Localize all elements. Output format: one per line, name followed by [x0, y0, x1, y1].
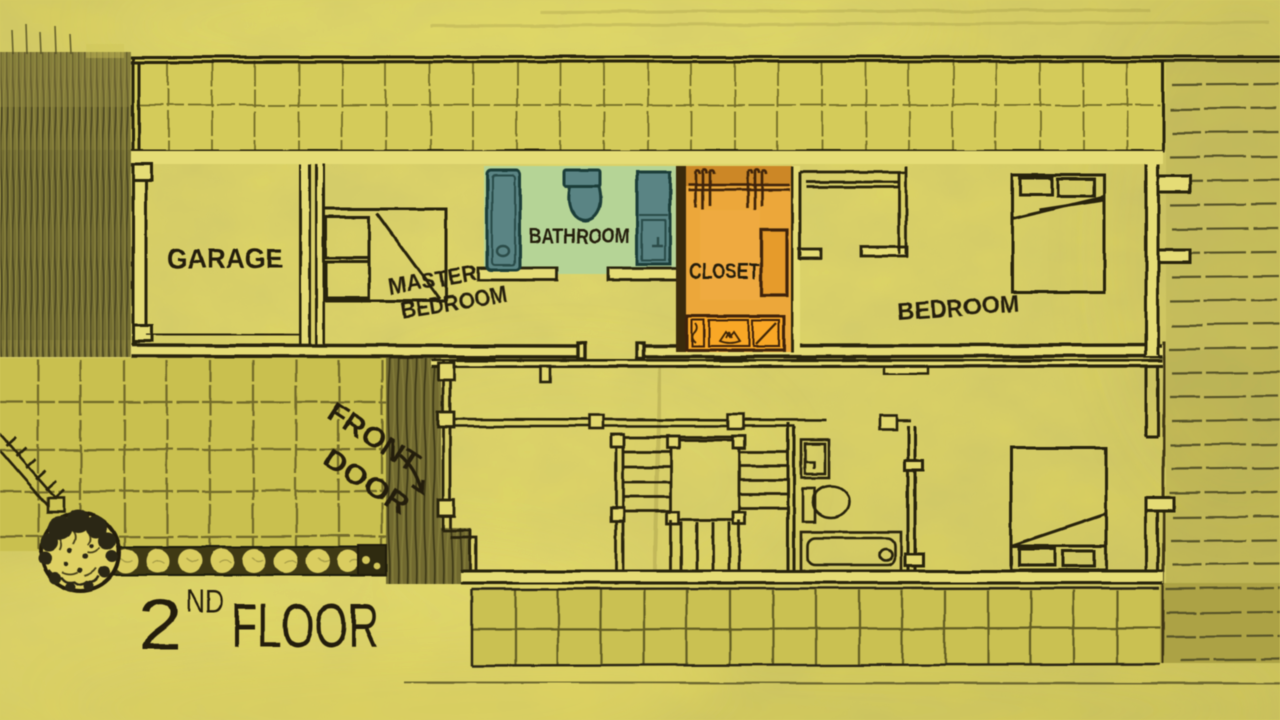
svg-text:FLOOR: FLOOR: [231, 592, 379, 661]
svg-text:ND: ND: [186, 583, 224, 619]
svg-text:GARAGE: GARAGE: [167, 243, 283, 274]
svg-text:CLOSET: CLOSET: [689, 259, 759, 284]
svg-text:BATHROOM: BATHROOM: [529, 225, 630, 248]
svg-text:2: 2: [138, 585, 182, 665]
